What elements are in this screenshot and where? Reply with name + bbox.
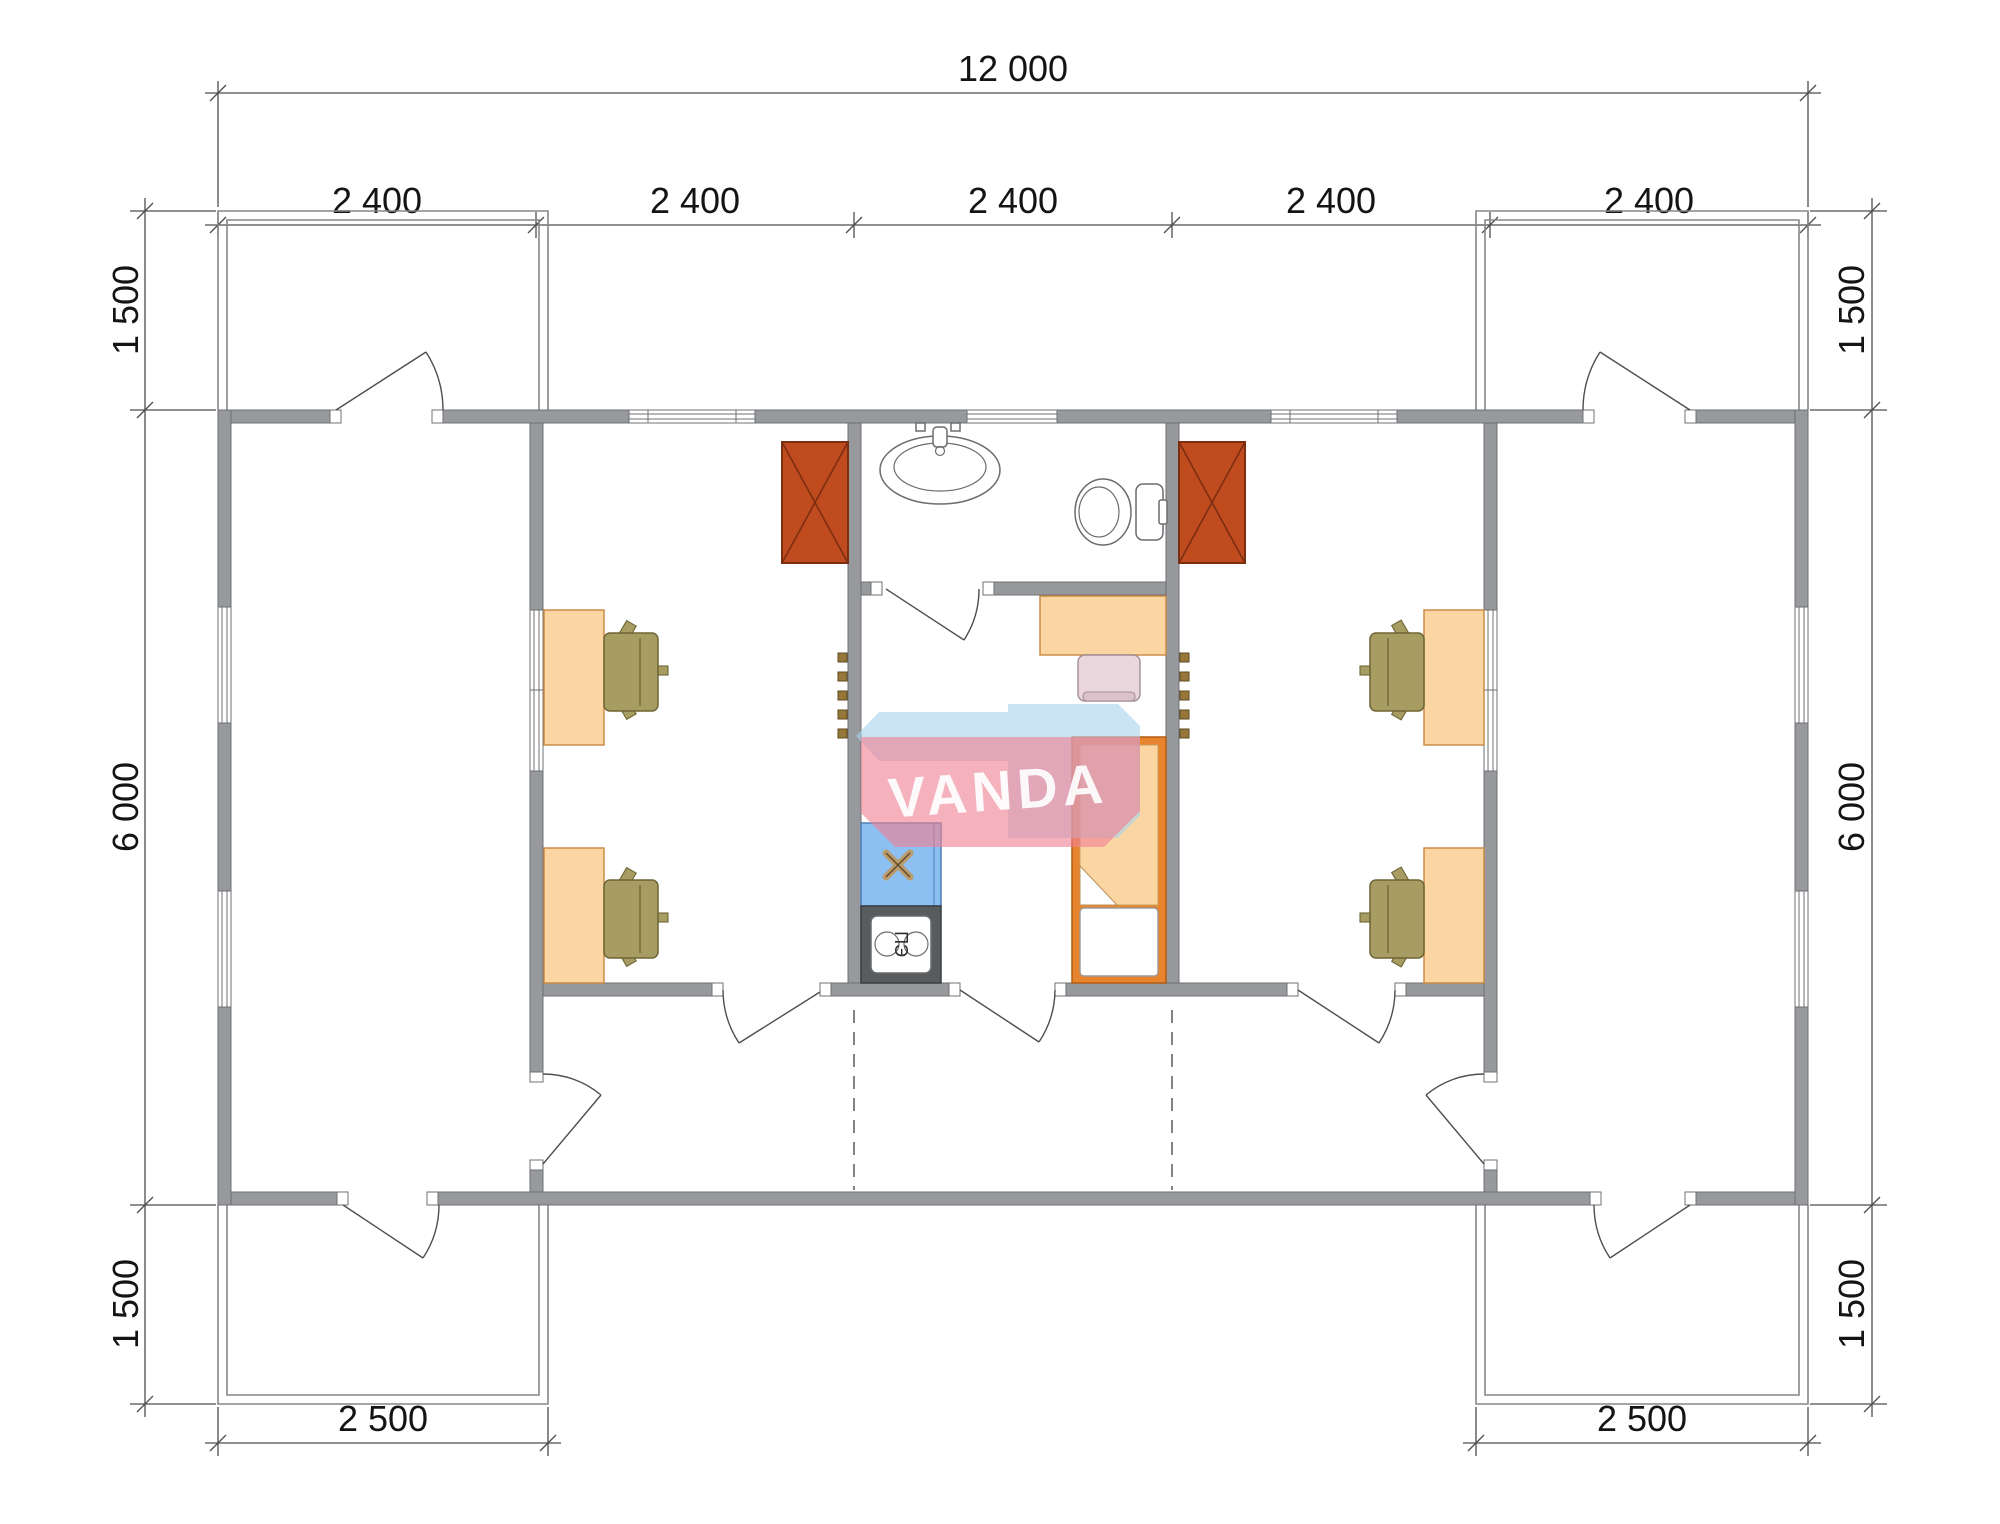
door-hall-right-room [1426,1074,1484,1164]
electric-stove-icon: ПЭ [861,906,941,983]
dimension-module-3-label: 2 400 [968,180,1058,221]
window-partition-right [1484,610,1497,771]
office-right-desk-1 [1424,610,1484,745]
wood-stove-left-icon [782,442,848,563]
dimension-left: 1 500 6 000 1 500 [105,198,216,1417]
window-top-office-right [1271,410,1397,423]
window-partition-left [530,610,543,771]
vanda-watermark: VANDA [856,704,1140,847]
terrace-top-right [1476,211,1808,410]
window-top-bathroom [967,410,1057,423]
door-bathroom [886,589,979,640]
office-left-desk-2 [544,848,604,983]
dimension-right-middle-label: 6 000 [1831,762,1872,852]
terrace-bottom-right [1476,1205,1808,1404]
office-right-desk-2 [1424,848,1484,983]
window-left-wall-upper [218,607,231,723]
dimension-bottom-right: 2 500 [1463,1398,1821,1456]
office-left-desk-1 [544,610,604,745]
dimension-right-bottom-label: 1 500 [1831,1259,1872,1349]
dimension-module-4-label: 2 400 [1286,180,1376,221]
door-terrace-bottom-left [343,1205,439,1258]
dimension-bottom-left: 2 500 [205,1398,561,1456]
dimension-module-1-label: 2 400 [332,180,422,221]
office-left-chair-1 [604,621,668,720]
dimension-overall-width-label: 12 000 [958,48,1068,89]
coat-hooks-right [1180,653,1189,738]
door-office-right [1298,990,1395,1043]
coat-hooks-left [838,653,847,738]
dimension-right-top-label: 1 500 [1831,265,1872,355]
dimension-left-top-label: 1 500 [105,265,146,355]
door-center-room [960,990,1055,1042]
bathroom-sink-icon [880,423,1000,504]
dimension-right: 1 500 6 000 1 500 [1810,198,1887,1417]
window-right-wall-upper [1795,607,1808,723]
door-hall-left-room [543,1074,601,1164]
window-top-office-left [629,410,755,423]
bedroom-desk [1040,596,1166,655]
office-right-chair-2 [1360,867,1424,967]
window-left-wall-lower [218,891,231,1007]
dimension-module-5-label: 2 400 [1604,180,1694,221]
floor-plan-canvas: 12 000 2 400 2 400 2 400 2 400 2 400 1 5… [0,0,2000,1524]
dimension-module-2-label: 2 400 [650,180,740,221]
door-terrace-top-right [1583,352,1690,410]
dimension-top-modules: 2 400 2 400 2 400 2 400 2 400 [205,180,1821,238]
door-office-left [723,990,820,1043]
floor-plan-drawing: 12 000 2 400 2 400 2 400 2 400 2 400 1 5… [0,0,2000,1524]
electric-stove-label: ПЭ [891,931,911,957]
dimension-left-bottom-label: 1 500 [105,1259,146,1349]
bedroom-chair [1078,655,1140,701]
door-terrace-top-left [336,352,443,410]
door-terrace-bottom-right [1594,1205,1690,1258]
terrace-bottom-left [218,1205,548,1404]
toilet-icon [1075,479,1167,545]
wood-stove-right-icon [1179,442,1245,563]
window-right-wall-lower [1795,891,1808,1007]
dimension-left-middle-label: 6 000 [105,762,146,852]
office-right-chair-1 [1360,620,1424,720]
office-left-chair-2 [604,868,668,967]
